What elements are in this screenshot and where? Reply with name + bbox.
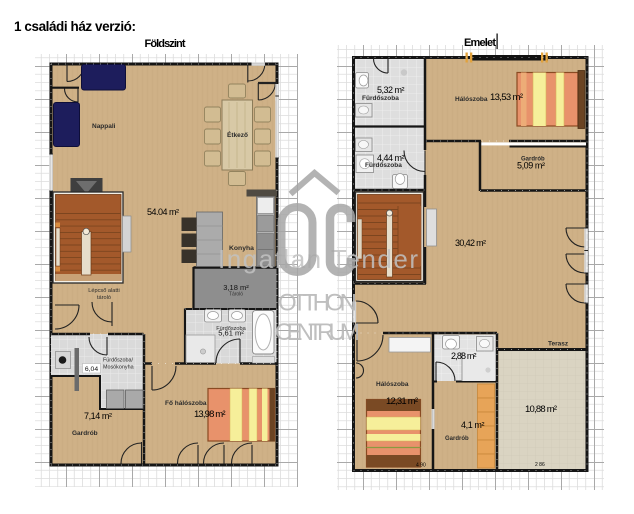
svg-text:13,98 m²: 13,98 m² <box>194 409 226 420</box>
svg-text:Tároló: Tároló <box>229 292 243 298</box>
svg-text:Fürdőszoba: Fürdőszoba <box>365 162 402 169</box>
svg-text:2 86: 2 86 <box>535 462 545 468</box>
svg-text:4,1 m²: 4,1 m² <box>461 420 485 430</box>
svg-text:Gardrób: Gardrób <box>445 436 469 442</box>
svg-text:Mosókonyha: Mosókonyha <box>103 365 134 371</box>
svg-text:54.04 m²: 54.04 m² <box>147 207 179 217</box>
svg-text:5,32 m²: 5,32 m² <box>377 85 405 95</box>
svg-text:Gardrób: Gardrób <box>72 430 98 437</box>
svg-text:30,42 m²: 30,42 m² <box>455 238 486 248</box>
svg-text:Fürdőszoba: Fürdőszoba <box>362 95 399 102</box>
svg-text:Fürdőszoba/: Fürdőszoba/ <box>103 358 133 364</box>
svg-text:Terasz: Terasz <box>548 341 569 348</box>
svg-text:1 családi ház verzió:: 1 családi ház verzió: <box>14 19 136 34</box>
svg-text:Nappali: Nappali <box>92 123 116 130</box>
svg-text:Ingatlan Tender: Ingatlan Tender <box>218 244 418 274</box>
svg-text:12,31 m²: 12,31 m² <box>386 396 418 407</box>
svg-text:4 90: 4 90 <box>416 463 426 469</box>
svg-text:10,88 m²: 10,88 m² <box>525 404 557 415</box>
svg-text:5,61 m²: 5,61 m² <box>218 329 244 338</box>
svg-text:Étkező: Étkező <box>227 130 248 139</box>
svg-text:6,04: 6,04 <box>85 366 98 373</box>
svg-text:CENTRUM: CENTRUM <box>275 319 360 346</box>
svg-text:Hálószoba: Hálószoba <box>455 96 488 103</box>
svg-text:7,14 m²: 7,14 m² <box>84 411 112 421</box>
svg-text:2,88 m²: 2,88 m² <box>451 351 477 361</box>
svg-text:Földszint: Földszint <box>145 38 186 50</box>
svg-text:13,53 m²: 13,53 m² <box>490 92 523 103</box>
svg-text:Fő hálószoba: Fő hálószoba <box>165 400 207 407</box>
svg-text:Emelet: Emelet <box>464 37 496 49</box>
svg-text:tároló: tároló <box>97 295 111 301</box>
svg-text:5,09 m²: 5,09 m² <box>517 161 545 171</box>
svg-text:Lépcső alatti: Lépcső alatti <box>88 288 119 294</box>
svg-text:Hálószoba: Hálószoba <box>376 381 409 388</box>
svg-text:OTTHON: OTTHON <box>278 290 357 317</box>
